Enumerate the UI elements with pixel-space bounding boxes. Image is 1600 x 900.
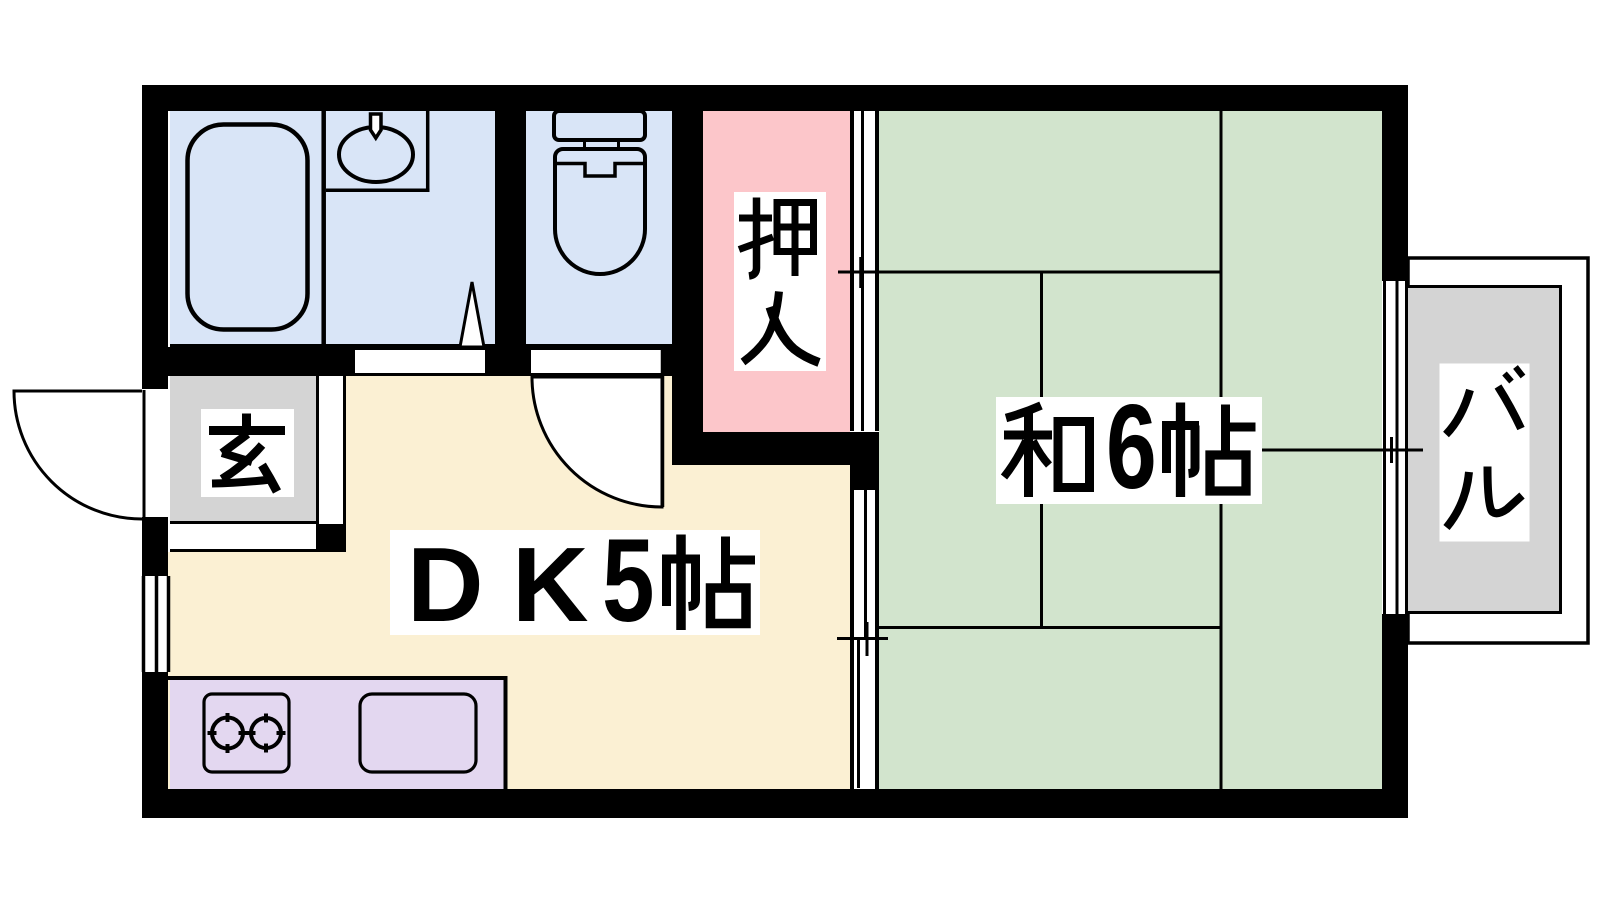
svg-text:6: 6	[1106, 380, 1157, 514]
svg-text:5: 5	[602, 514, 654, 647]
svg-text:K: K	[512, 526, 589, 644]
svg-text:D: D	[407, 526, 484, 644]
